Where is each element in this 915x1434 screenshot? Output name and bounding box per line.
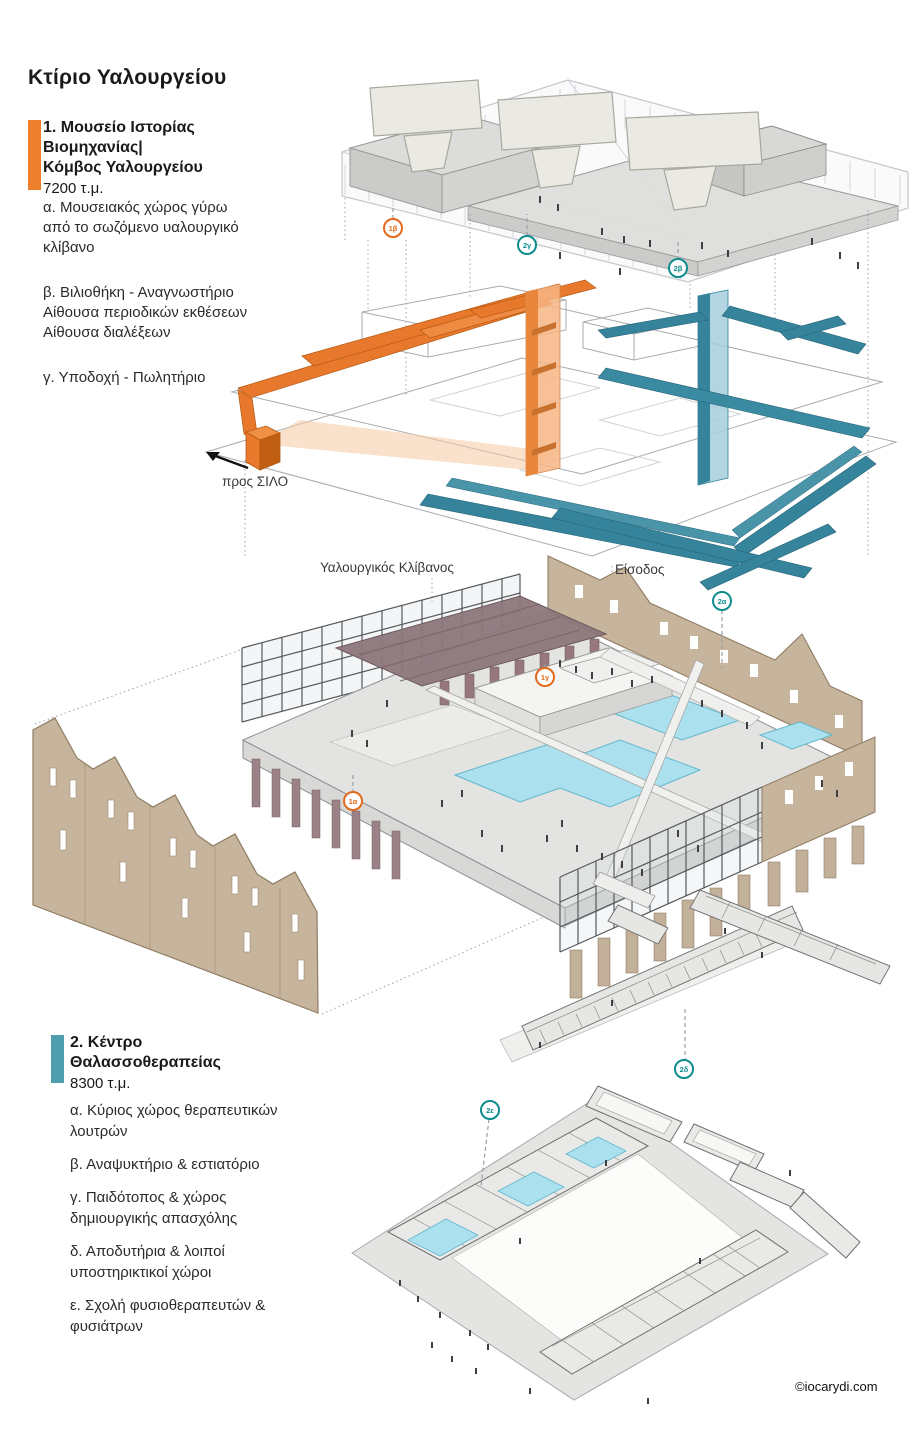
legend2-header: 2. Κέντρο Θαλασσοθεραπείας 8300 τ.μ. (70, 1033, 221, 1093)
legend1-title-line1: 1. Μουσείο Ιστορίας (43, 118, 203, 138)
label-entrance: Είσοδος (615, 562, 664, 577)
badge-2b: 2β (668, 258, 688, 278)
exploded-roof-layer (342, 80, 908, 282)
badge-1a: 1α (343, 791, 363, 811)
legend1-color-bar (28, 120, 41, 190)
legend2-area: 8300 τ.μ. (70, 1074, 221, 1093)
page-title: Κτίριο Υαλουργείου (28, 66, 226, 90)
label-to-silo: προς ΣΙΛΟ (222, 474, 288, 489)
therapy-school-layer (352, 1086, 860, 1404)
badge-1b: 1β (383, 218, 403, 238)
silo-exit-box (246, 426, 280, 470)
badge-1g: 1γ (535, 667, 555, 687)
legend2-item-a: α. Κύριος χώρος θεραπευτικών λουτρών (70, 1100, 340, 1142)
legend2-item-b: β. Αναψυκτήριο & εστιατόριο (70, 1154, 340, 1175)
legend1-title-line3: Κόμβος Υαλουργείου (43, 158, 203, 178)
silo-arrow (206, 452, 248, 468)
legend1-items: α. Μουσειακός χώρος γύρω από το σωζόμενο… (43, 198, 313, 413)
legend2-color-bar (51, 1035, 64, 1083)
legend2-item-d: δ. Αποδυτήρια & λοιποί υποστηρικτικοί χώ… (70, 1241, 340, 1283)
legend1-item-b: β. Βιλιοθήκη - Αναγνωστήριο Αίθουσα περι… (43, 283, 313, 343)
poster-canvas: Κτίριο Υαλουργείου 1. Μουσείο Ιστορίας Β… (0, 0, 915, 1434)
legend1-item-c: γ. Υποδοχή - Πωλητήριο (43, 368, 313, 388)
legend1-item-a: α. Μουσειακός χώρος γύρω από το σωζόμενο… (43, 198, 313, 258)
badge-2g: 2γ (517, 235, 537, 255)
copyright: ©iocarydi.com (795, 1379, 878, 1394)
badge-2e: 2ε (480, 1100, 500, 1120)
legend2-title-line2: Θαλασσοθεραπείας (70, 1053, 221, 1073)
therapy-ramps-teal (420, 290, 876, 590)
legend2-items: α. Κύριος χώρος θεραπευτικών λουτρών β. … (70, 1100, 340, 1349)
legend2-item-e: ε. Σχολή φυσιοθεραπευτών & φυσιάτρων (70, 1295, 340, 1337)
badge-2a: 2α (712, 591, 732, 611)
legend1-area: 7200 τ.μ. (43, 179, 203, 198)
legend2-title-line1: 2. Κέντρο (70, 1033, 221, 1053)
label-furnace: Υαλουργικός Κλίβανος (320, 560, 454, 575)
legend2-item-c: γ. Παιδότοπος & χώρος δημιουργικής απασχ… (70, 1187, 340, 1229)
badge-2d: 2δ (674, 1059, 694, 1079)
ground-floor-layer (33, 556, 890, 1062)
legend1-header: 1. Μουσείο Ιστορίας Βιομηχανίας| Κόμβος … (43, 118, 203, 198)
legend1-title-line2: Βιομηχανίας| (43, 138, 203, 158)
